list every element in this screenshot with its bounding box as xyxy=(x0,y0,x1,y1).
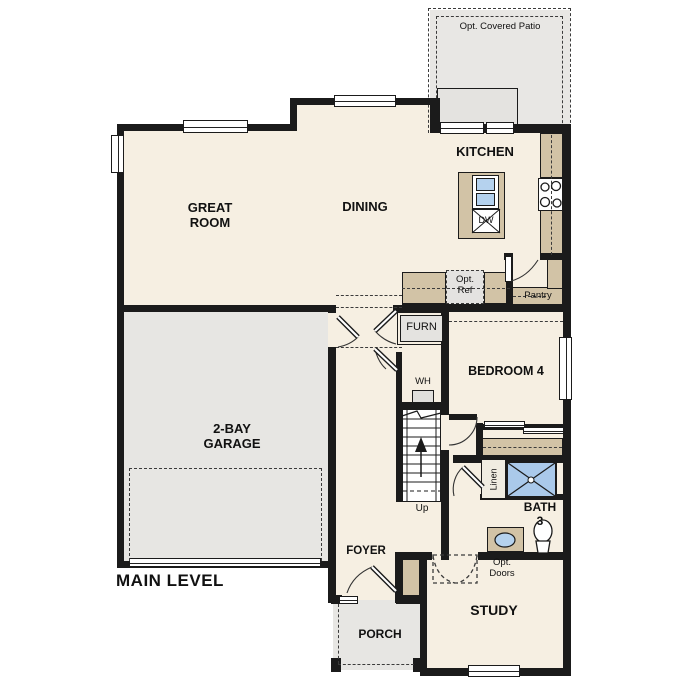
bath-vanity xyxy=(487,527,524,552)
label-dining: DINING xyxy=(305,199,425,214)
dash-bedroom4-entry xyxy=(449,321,563,322)
label-kitchen: KITCHEN xyxy=(425,144,545,159)
dash-porch-bottom xyxy=(338,664,414,665)
wall-garage-top xyxy=(117,305,333,312)
wall-foyer-right xyxy=(395,552,402,603)
label-furnace: FURN xyxy=(400,321,443,334)
label-dishwasher: DW xyxy=(472,215,500,226)
dash-hall-lower xyxy=(336,347,402,348)
dash-closet-rod xyxy=(483,447,562,448)
water-heater-box xyxy=(412,390,434,403)
wall-right-exterior xyxy=(563,124,571,676)
floor-plan: GREATROOM DINING KITCHEN 2-BAYGARAGE BED… xyxy=(0,0,687,687)
label-foyer: FOYER xyxy=(336,545,396,559)
label-bath3: BATH3 xyxy=(516,500,564,528)
wall-study-left xyxy=(420,556,427,676)
dash-garage-apron xyxy=(129,468,322,561)
dash-dining-hall-2 xyxy=(336,307,402,308)
stairwell xyxy=(402,409,441,502)
label-porch: PORCH xyxy=(345,627,415,641)
label-water-heater: WH xyxy=(412,376,434,387)
closet-slider-2 xyxy=(523,427,564,434)
pantry-shelf-right xyxy=(547,258,563,289)
label-opt-covered-patio: Opt. Covered Patio xyxy=(430,21,570,32)
wall-left-exterior xyxy=(117,124,124,568)
island-sink-bowl-2 xyxy=(476,193,495,206)
label-main-level: MAIN LEVEL xyxy=(116,571,316,591)
wall-stair-top xyxy=(396,402,449,409)
garage-entry-opening xyxy=(328,313,336,347)
wall-porch-corner-right xyxy=(413,658,421,672)
greatroom-top-window xyxy=(183,120,248,133)
label-opt-doors: Opt.Doors xyxy=(481,557,523,580)
label-garage: 2-BAYGARAGE xyxy=(172,421,292,452)
pantry-door-leaf xyxy=(505,256,512,282)
wall-garage-right xyxy=(328,305,336,603)
wall-counter-bottom xyxy=(402,304,570,312)
kitchen-slider-a xyxy=(440,122,484,134)
greatroom-left-window xyxy=(111,135,124,173)
wall-bed4-left-lower xyxy=(441,450,449,560)
label-linen: Linen xyxy=(489,459,500,499)
dining-window xyxy=(334,95,396,107)
label-bedroom4: BEDROOM 4 xyxy=(446,364,566,379)
shower xyxy=(506,461,557,498)
dash-porch-left xyxy=(338,604,339,664)
label-study: STUDY xyxy=(434,602,554,619)
label-up: Up xyxy=(411,503,433,515)
kitchen-slider-b xyxy=(486,122,514,134)
island-sink-bowl-1 xyxy=(476,178,495,191)
wall-pantry-top-right xyxy=(540,253,564,260)
label-pantry: Pantry xyxy=(512,290,564,301)
foyer-cabinet xyxy=(402,556,420,598)
wall-porch-corner-left xyxy=(331,658,341,672)
front-door-threshold xyxy=(339,596,358,604)
closet-slider-1 xyxy=(484,421,525,428)
label-great-room: GREATROOM xyxy=(150,200,270,231)
label-opt-ref: Opt.Ref xyxy=(447,274,483,297)
bed4-door-leaf xyxy=(449,414,477,420)
study-window xyxy=(468,665,520,677)
dash-dining-hall-1 xyxy=(336,295,402,296)
dash-kitchen-counter xyxy=(551,135,552,255)
patio-outline-inner xyxy=(436,16,563,133)
